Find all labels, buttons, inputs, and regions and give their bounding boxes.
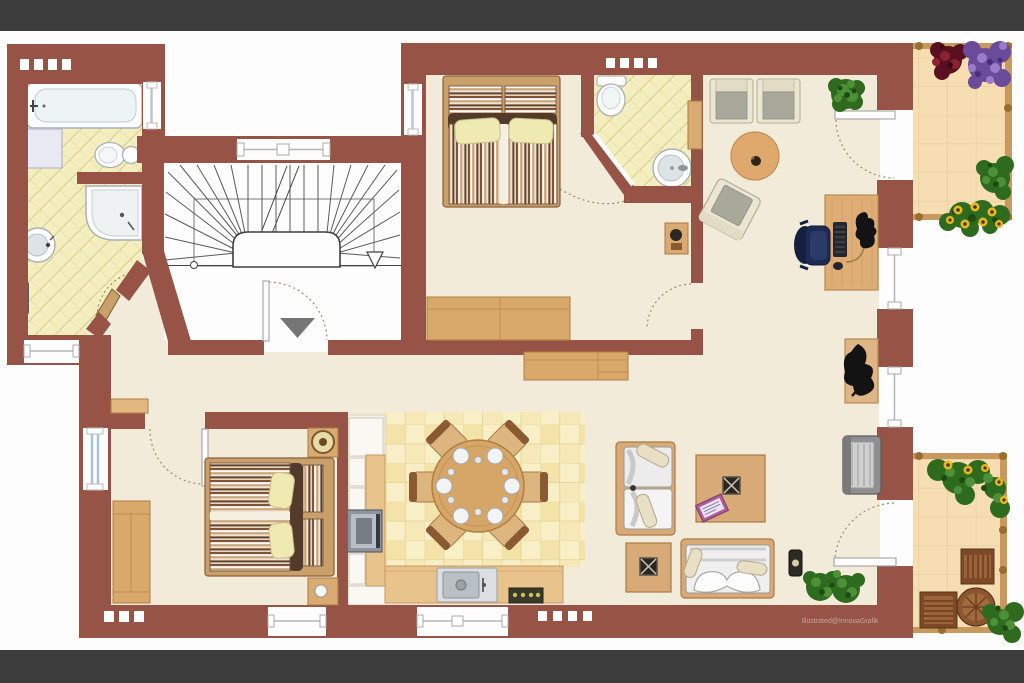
svg-text:Illustrated@InnovaGrafik: Illustrated@InnovaGrafik	[801, 618, 879, 625]
